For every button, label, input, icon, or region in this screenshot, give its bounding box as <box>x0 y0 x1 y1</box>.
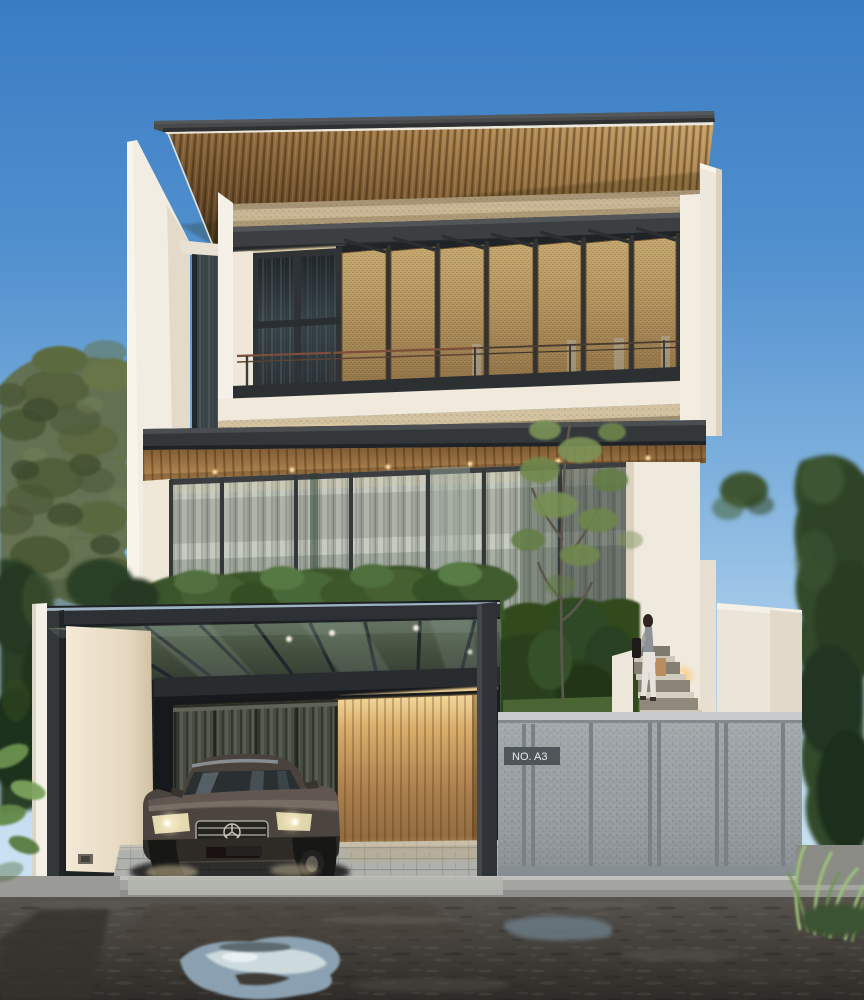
svg-text:NO. A3: NO. A3 <box>512 751 547 763</box>
